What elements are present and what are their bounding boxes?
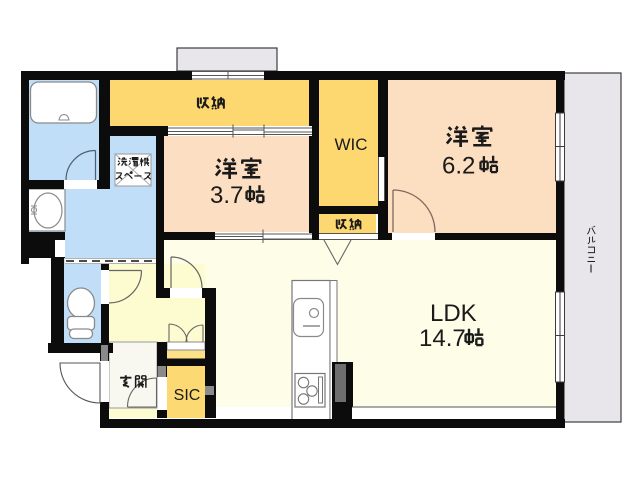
svg-text:6.2: 6.2 [442, 153, 475, 180]
svg-text:SIC: SIC [174, 387, 201, 404]
svg-text:LDK: LDK [430, 300, 477, 327]
svg-text:14.7: 14.7 [419, 325, 466, 352]
svg-text:3.7: 3.7 [210, 182, 243, 209]
svg-text:WIC: WIC [334, 135, 367, 154]
